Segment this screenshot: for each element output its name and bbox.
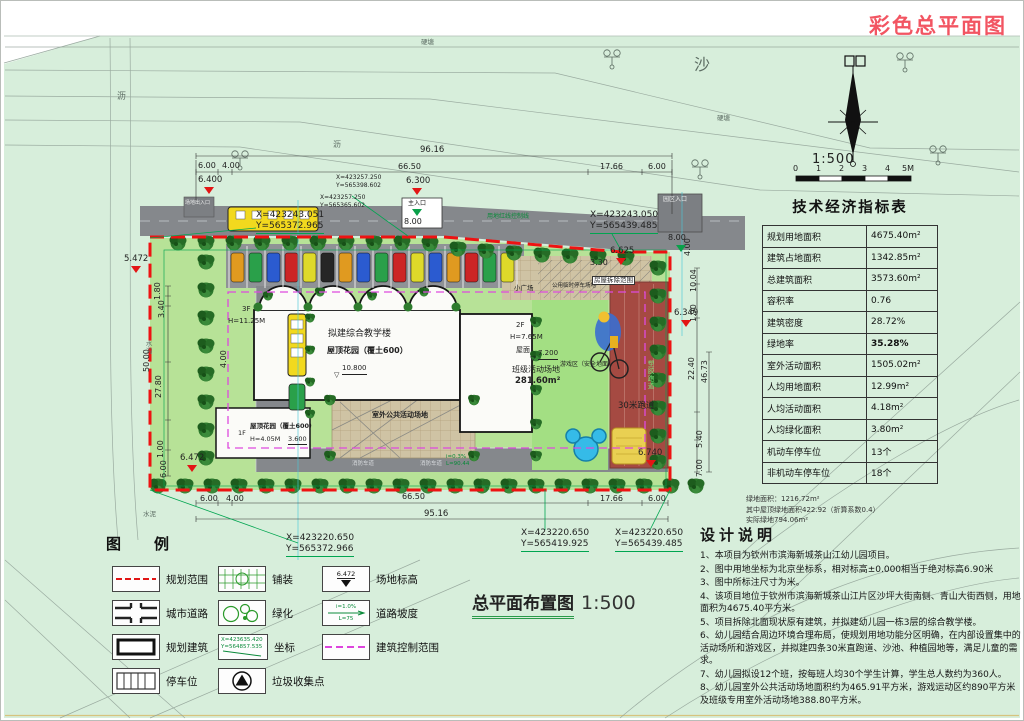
dim-right-3: 22.40 xyxy=(688,357,697,380)
scale-tick-5: 5M xyxy=(902,164,914,173)
coordinate-x: X=423220.650 xyxy=(615,528,683,539)
wing-height: H=7.65M xyxy=(510,334,543,342)
dim-gate-side-width: 8.00 xyxy=(668,234,686,243)
scale-tick-0: 0 xyxy=(793,164,798,173)
row-value: 1342.85m² xyxy=(867,247,938,269)
level-5-marker xyxy=(681,320,691,327)
bg-label-pond: 硬塘 xyxy=(421,39,434,46)
legend-item-parking: 停车位 xyxy=(112,668,198,694)
track-label: 30米跑道 xyxy=(618,402,654,411)
level-3: 6.625 xyxy=(610,247,634,256)
red-line-label: 用地红线控制线 xyxy=(487,214,529,221)
dim-top-4: 17.66 xyxy=(600,163,623,172)
fire-lane-label: 消防车道 xyxy=(352,461,374,467)
dim-left-2: 3.40 xyxy=(158,300,167,318)
dim-left-4: 27.80 xyxy=(155,375,164,398)
row-label: 机动车停车位 xyxy=(763,441,867,463)
row-label: 人均用地面积 xyxy=(763,376,867,398)
legend-label: 建筑控制范围 xyxy=(376,640,439,655)
legend-item-planned-building: 规划建筑 xyxy=(112,634,208,660)
table-row: 室外活动面积1505.02m² xyxy=(763,355,938,377)
coordinate-x: X=423257.250 xyxy=(320,194,365,202)
level-4: 5.472 xyxy=(124,255,148,264)
page-title: 彩色总平面图 xyxy=(869,10,1007,40)
level-1-marker xyxy=(204,187,214,194)
row-label: 总建筑面积 xyxy=(763,269,867,291)
coordinate-x: X=423243.051 xyxy=(256,210,324,221)
main-building-label: 拟建综合教学楼 xyxy=(328,330,391,340)
indicator-table-panel: 技术经济指标表 规划用地面积4675.40m² 建筑占地面积1342.85m² … xyxy=(762,196,938,484)
north-arrow xyxy=(828,56,878,167)
coordinate-callout: X=423220.650 Y=565439.485 xyxy=(615,528,683,552)
plan-title-text: 总平面布置图 xyxy=(472,594,574,619)
coordinate-callout: X=423220.650 Y=565372.966 xyxy=(286,533,354,557)
cement-label: 水泥 xyxy=(143,511,156,518)
legend-label: 场地标高 xyxy=(376,572,418,587)
bg-label-road-name: 沥 xyxy=(333,141,341,150)
footnote: 绿地面积：1216.72m² xyxy=(746,494,880,505)
table-row: 非机动车停车位18个 xyxy=(763,462,938,484)
design-note: 3、图中所标注尺寸为米。 xyxy=(700,577,1022,590)
wing-level: 7.200 xyxy=(538,350,558,360)
dim-bottom-total: 95.16 xyxy=(424,510,448,519)
dim-right-4: 46.73 xyxy=(701,360,710,383)
gate-side-label: 园区入口 xyxy=(663,197,687,204)
table-row: 规划用地面积4675.40m² xyxy=(763,226,938,248)
design-note: 1、本项目为钦州市滨海新城茶山江幼儿园项目。 xyxy=(700,550,1022,563)
legend-label: 城市道路 xyxy=(166,606,208,621)
dim-top-5: 6.00 xyxy=(648,163,666,172)
dim-left-5: 1.00 xyxy=(157,440,166,458)
elevation-triangle-icon xyxy=(341,580,351,587)
legend-label: 铺装 xyxy=(272,572,293,587)
design-note: 5、项目拆除北面现状原有建筑，并拟建幼儿园一栋3层的综合教学楼。 xyxy=(700,617,1022,630)
legend-label: 停车位 xyxy=(166,674,198,689)
wing-roof-label: 屋面 xyxy=(516,347,530,355)
level-3-marker xyxy=(616,258,626,265)
wing-level-marker: ▽ xyxy=(530,356,535,364)
coordinate-y: Y=565439.485 xyxy=(590,221,658,232)
legend-title: 图 例 xyxy=(106,533,178,554)
main-level: 10.800 xyxy=(342,365,367,375)
coordinate-x: X=423257.250 xyxy=(336,174,381,182)
dim-right-5: 5.40 xyxy=(696,430,705,448)
row-value: 28.72% xyxy=(867,312,938,334)
parking-swatch-icon xyxy=(112,668,160,694)
dim-top-2: 4.00 xyxy=(222,162,240,171)
level-6-marker xyxy=(187,465,197,472)
dim-top-3: 66.50 xyxy=(398,163,421,172)
legend-item-paving: 铺装 xyxy=(218,566,293,592)
row-label: 建筑密度 xyxy=(763,312,867,334)
indicator-table-footnotes: 绿地面积：1216.72m² 其中屋顶绿地面积422.92（折算系数0.4） 实… xyxy=(746,494,880,526)
wing-floors: 2F xyxy=(516,322,524,330)
coordinate-callout: X=423257.250 Y=565365.602 xyxy=(320,194,365,209)
bg-label-sand: 沙 xyxy=(694,56,710,74)
demolition-label: 房屋拆除范围 xyxy=(592,276,635,285)
table-row: 总建筑面积3573.60m² xyxy=(763,269,938,291)
dim-left-6: 6.00 xyxy=(160,460,169,478)
coordinate-x: X=423243.050 xyxy=(590,210,658,221)
activity-plaza-label: 室外公共活动场地 xyxy=(372,412,428,420)
road-slope-i-label: i=0.3% xyxy=(446,454,466,460)
row-value: 0.76 xyxy=(867,290,938,312)
coordinate-y: Y=565419.925 xyxy=(521,539,589,550)
indicator-table: 规划用地面积4675.40m² 建筑占地面积1342.85m² 总建筑面积357… xyxy=(762,225,938,484)
coordinate-callout: X=423257.250 Y=565398.602 xyxy=(336,174,381,189)
level-6: 6.472 xyxy=(180,454,204,463)
paving-swatch-icon xyxy=(218,566,266,592)
sand-pit xyxy=(612,428,646,464)
legend-item-coordinate: X=423635.420 Y=564857.535 坐标 xyxy=(218,634,295,660)
dim-parking-depth: 3.30 xyxy=(590,259,608,268)
main-level-marker: ▽ xyxy=(334,372,339,380)
gate-elevation-marker xyxy=(412,209,422,216)
dim-gate-main-width: 8.00 xyxy=(404,218,422,227)
coordinate-y: Y=565372.966 xyxy=(286,544,354,555)
legend-item-city-road: 城市道路 xyxy=(112,600,208,626)
coordinate-x: X=423220.650 xyxy=(286,533,354,544)
legend-label: 垃圾收集点 xyxy=(272,674,325,689)
building-control-swatch-icon xyxy=(322,634,370,660)
road-slope-l: L=75 xyxy=(339,616,354,622)
coordinate-callout: X=423220.650 Y=565419.925 xyxy=(521,528,589,552)
table-row: 机动车停车位13个 xyxy=(763,441,938,463)
site-elevation-value: 6.472 xyxy=(337,571,356,580)
legend-label: 坐标 xyxy=(274,640,295,655)
row-value: 1505.02m² xyxy=(867,355,938,377)
legend-item-garbage: 垃圾收集点 xyxy=(218,668,325,694)
design-note: 7、幼儿园拟设12个班，按每班人均30个学生计算，学生总人数约为360人。 xyxy=(700,669,1022,682)
design-note: 6、幼儿园结合周边环境合理布局，使规划用地功能分区明确，在内部设置集中的活动场所… xyxy=(700,630,1022,668)
row-label: 非机动车停车位 xyxy=(763,462,867,484)
level-2: 6.300 xyxy=(406,177,430,186)
city-road-swatch-icon xyxy=(112,600,160,626)
row-label: 人均绿化面积 xyxy=(763,419,867,441)
row-label: 绿地率 xyxy=(763,333,867,355)
play-area-label: 游戏区（安全地面） xyxy=(560,362,614,369)
row-value: 4.18m² xyxy=(867,398,938,420)
table-row: 人均用地面积12.99m² xyxy=(763,376,938,398)
dim-bottom-5: 6.00 xyxy=(648,495,666,504)
coordinate-x: X=423220.650 xyxy=(521,528,589,539)
activity-plaza xyxy=(332,396,475,458)
design-note: 8、幼儿园室外公共活动场地面积约为465.91平方米，游戏运动区约890平方米及… xyxy=(700,682,1022,707)
legend-item-greening: 绿化 xyxy=(218,600,293,626)
small-building-floors: 1F xyxy=(238,430,246,437)
design-note: 4、该项目地位于钦州市滨海新城茶山江片区沙坪大街南侧、青山大街西侧，用地面积为4… xyxy=(700,591,1022,616)
row-label: 人均活动面积 xyxy=(763,398,867,420)
dim-bottom-2: 4.00 xyxy=(226,495,244,504)
level-7-marker xyxy=(646,460,656,467)
legend-label: 规划建筑 xyxy=(166,640,208,655)
level-1: 6.400 xyxy=(198,176,222,185)
main-building-height: H=11.25M xyxy=(228,318,265,326)
dim-road-width: 4.00 xyxy=(220,350,229,368)
planning-boundary-swatch-icon xyxy=(112,566,160,592)
plan-title-scale: 1:500 xyxy=(581,592,636,614)
legend-item-site-elevation: 6.472 场地标高 xyxy=(322,566,418,592)
coordinate-y: Y=565439.485 xyxy=(615,539,683,550)
coordinate-callout: X=423243.050 Y=565439.485 xyxy=(590,210,658,234)
level-4-marker xyxy=(131,266,141,273)
road-slope-l-label: L=90.44 xyxy=(446,461,469,467)
row-label: 室外活动面积 xyxy=(763,355,867,377)
garbage-swatch-icon xyxy=(218,668,266,694)
service-vehicles xyxy=(288,314,306,410)
coordinate-callout: X=423243.051 Y=565372.965 xyxy=(256,210,324,234)
roof-garden-label: 屋顶花园（覆土600） xyxy=(327,347,408,356)
scale-bar xyxy=(796,176,911,181)
scale-tick-1: 1 xyxy=(816,164,821,173)
legend-item-building-control: 建筑控制范围 xyxy=(322,634,439,660)
plan-title: 总平面布置图1:500 xyxy=(472,589,636,614)
dim-top-1: 6.00 xyxy=(198,162,216,171)
legend-label: 绿化 xyxy=(272,606,293,621)
dim-bottom-3: 66.50 xyxy=(402,493,425,502)
design-notes-title: 设计说明 xyxy=(700,524,1022,545)
fire-lane-label: 消防车道 xyxy=(420,461,442,467)
table-row: 人均绿化面积3.80m² xyxy=(763,419,938,441)
dim-bottom-4: 17.66 xyxy=(600,495,623,504)
row-value: 13个 xyxy=(867,441,938,463)
site-elevation-swatch-icon: 6.472 xyxy=(322,566,370,592)
row-value: 3.80m² xyxy=(867,419,938,441)
scale-tick-4: 4 xyxy=(885,164,890,173)
main-building-floors: 3F xyxy=(242,306,250,314)
small-building-level: 3.600 xyxy=(288,436,307,445)
ditch-label: 水沟 xyxy=(144,340,151,355)
small-building xyxy=(216,408,310,458)
table-row: 容积率0.76 xyxy=(763,290,938,312)
table-row: 人均活动面积4.18m² xyxy=(763,398,938,420)
legend-label: 规划范围 xyxy=(166,572,208,587)
row-value: 12.99m² xyxy=(867,376,938,398)
row-value: 18个 xyxy=(867,462,938,484)
small-building-height: H=4.05M xyxy=(250,436,280,443)
row-value: 35.28% xyxy=(867,333,938,355)
row-value: 4675.40m² xyxy=(867,226,938,248)
row-label: 规划用地面积 xyxy=(763,226,867,248)
class-field-label: 班级活动场地 xyxy=(512,366,560,375)
legend-item-planning-boundary: 规划范围 xyxy=(112,566,208,592)
design-notes-panel: 设计说明 1、本项目为钦州市滨海新城茶山江幼儿园项目。 2、图中用地坐标为北京坐… xyxy=(700,524,1022,708)
small-square-label: 小广场 xyxy=(514,285,534,292)
class-field-area: 281.60m² xyxy=(515,377,560,386)
scale-tick-2: 2 xyxy=(839,164,844,173)
coordinate-swatch-icon: X=423635.420 Y=564857.535 xyxy=(218,634,268,660)
level-2-marker xyxy=(412,188,422,195)
legend-item-road-slope: i=1.0% L=75 道路坡度 xyxy=(322,600,418,626)
site-plan-sheet: { "page": { "title": "彩色总平面图", "plan_tit… xyxy=(0,0,1024,721)
road-slope-swatch-icon: i=1.0% L=75 xyxy=(322,600,370,626)
side-entry-label: 场地出入口 xyxy=(185,201,210,207)
table-row: 绿地率35.28% xyxy=(763,333,938,355)
row-value: 3573.60m² xyxy=(867,269,938,291)
level-5: 6.349 xyxy=(674,309,698,318)
temp-parking-label: 公用临时停车场地 xyxy=(552,283,596,289)
scale-tick-3: 3 xyxy=(862,164,867,173)
track-surface-label: 塑胶跑道 xyxy=(646,360,653,390)
coordinate-y: Y=565372.965 xyxy=(256,221,324,232)
design-note: 2、图中用地坐标为北京坐标系，相对标高±0.000相当于绝对标高6.90米 xyxy=(700,564,1022,577)
row-label: 建筑占地面积 xyxy=(763,247,867,269)
dim-top-total: 96.16 xyxy=(420,146,444,155)
dim-right-6: 7.00 xyxy=(696,459,705,477)
table-row: 建筑密度28.72% xyxy=(763,312,938,334)
footnote: 其中屋顶绿地面积422.92（折算系数0.4） xyxy=(746,505,880,516)
bg-label-road-name: 沥 xyxy=(117,93,126,103)
bg-label-pond: 硬塘 xyxy=(717,115,730,122)
gate-main-label: 主入口 xyxy=(408,201,426,208)
greening-swatch-icon xyxy=(218,600,266,626)
dim-bottom-1: 6.00 xyxy=(200,495,218,504)
level-7: 6.740 xyxy=(638,449,662,458)
table-row: 建筑占地面积1342.85m² xyxy=(763,247,938,269)
indicator-table-title: 技术经济指标表 xyxy=(762,196,938,217)
dim-left-1: 1.80 xyxy=(154,282,163,300)
legend-label: 道路坡度 xyxy=(376,606,418,621)
coordinate-y: Y=565365.602 xyxy=(320,202,365,210)
planned-building-swatch-icon xyxy=(112,634,160,660)
dim-right-1: 10.04 xyxy=(690,269,699,292)
small-building-roof-label: 屋顶花园（覆土600） xyxy=(250,423,316,430)
coordinate-y: Y=565398.602 xyxy=(336,182,381,190)
gate-side-elevation-marker xyxy=(676,245,686,252)
row-label: 容积率 xyxy=(763,290,867,312)
